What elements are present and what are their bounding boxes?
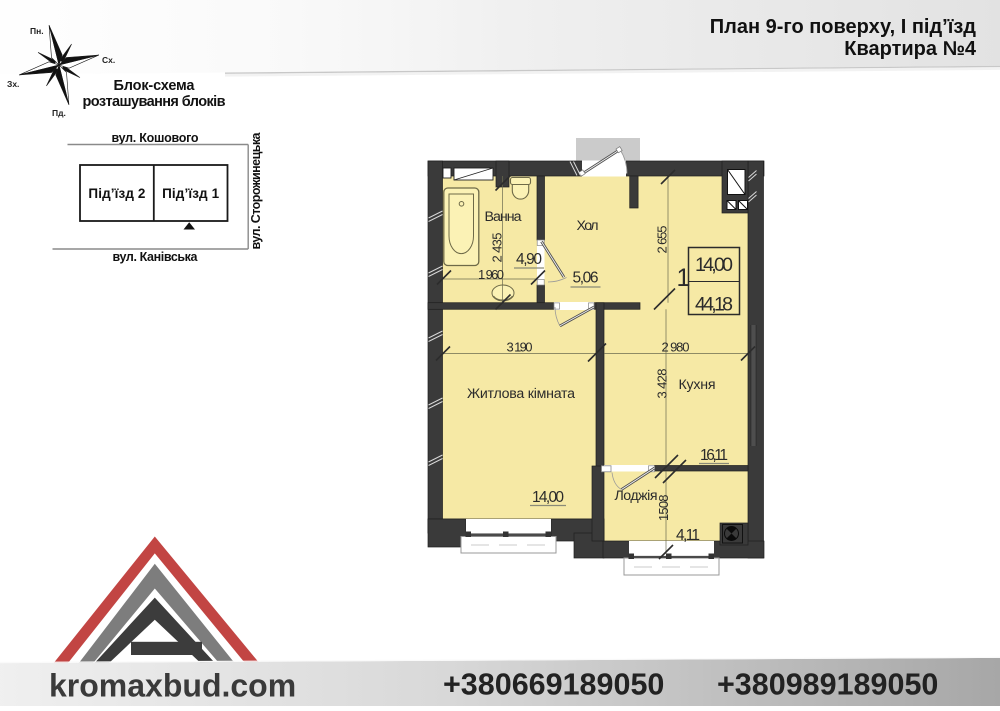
svg-text:16,11: 16,11 xyxy=(700,447,728,464)
svg-text:Блок-схема: Блок-схема xyxy=(114,78,196,94)
svg-text:14,00: 14,00 xyxy=(695,254,733,276)
svg-text:1508: 1508 xyxy=(656,495,671,522)
svg-text:Кухня: Кухня xyxy=(679,377,716,393)
svg-text:Під’їзд 1: Під’їзд 1 xyxy=(162,186,219,201)
svg-text:Зх.: Зх. xyxy=(7,79,19,89)
svg-text:Житлова кімната: Житлова кімната xyxy=(467,386,575,402)
svg-text:Ванна: Ванна xyxy=(485,209,522,225)
svg-text:План 9-го поверху, І під’їзд: План 9-го поверху, І під’їзд xyxy=(710,16,977,38)
svg-text:Пн.: Пн. xyxy=(30,26,44,36)
svg-text:14,00: 14,00 xyxy=(532,489,564,506)
svg-text:+380669189050: +380669189050 xyxy=(443,668,664,702)
svg-text:Хол: Хол xyxy=(577,218,599,234)
svg-text:вул. Кошового: вул. Кошового xyxy=(112,131,199,145)
svg-text:1: 1 xyxy=(677,264,691,292)
svg-text:1 960: 1 960 xyxy=(478,267,504,282)
svg-text:Пд.: Пд. xyxy=(52,108,66,118)
svg-text:2 980: 2 980 xyxy=(662,340,690,355)
svg-text:kromaxbud.com: kromaxbud.com xyxy=(49,668,296,704)
svg-text:3 190: 3 190 xyxy=(507,340,533,355)
svg-text:Під’їзд 2: Під’їзд 2 xyxy=(88,186,145,201)
svg-text:розташування блоків: розташування блоків xyxy=(83,94,226,110)
svg-text:4,11: 4,11 xyxy=(676,527,700,544)
svg-text:5,06: 5,06 xyxy=(573,270,599,287)
svg-text:вул. Сторожинецька: вул. Сторожинецька xyxy=(249,131,263,249)
svg-text:2 655: 2 655 xyxy=(655,226,670,254)
svg-text:44,18: 44,18 xyxy=(695,294,733,316)
svg-text:Лоджія: Лоджія xyxy=(615,488,658,504)
svg-text:4,90: 4,90 xyxy=(516,251,542,268)
svg-text:3 428: 3 428 xyxy=(655,369,670,399)
svg-text:+380989189050: +380989189050 xyxy=(717,668,938,702)
svg-text:вул. Канівська: вул. Канівська xyxy=(113,250,199,264)
svg-text:Квартира №4: Квартира №4 xyxy=(844,38,977,60)
svg-text:2 435: 2 435 xyxy=(490,233,505,263)
svg-text:Сх.: Сх. xyxy=(102,55,115,65)
